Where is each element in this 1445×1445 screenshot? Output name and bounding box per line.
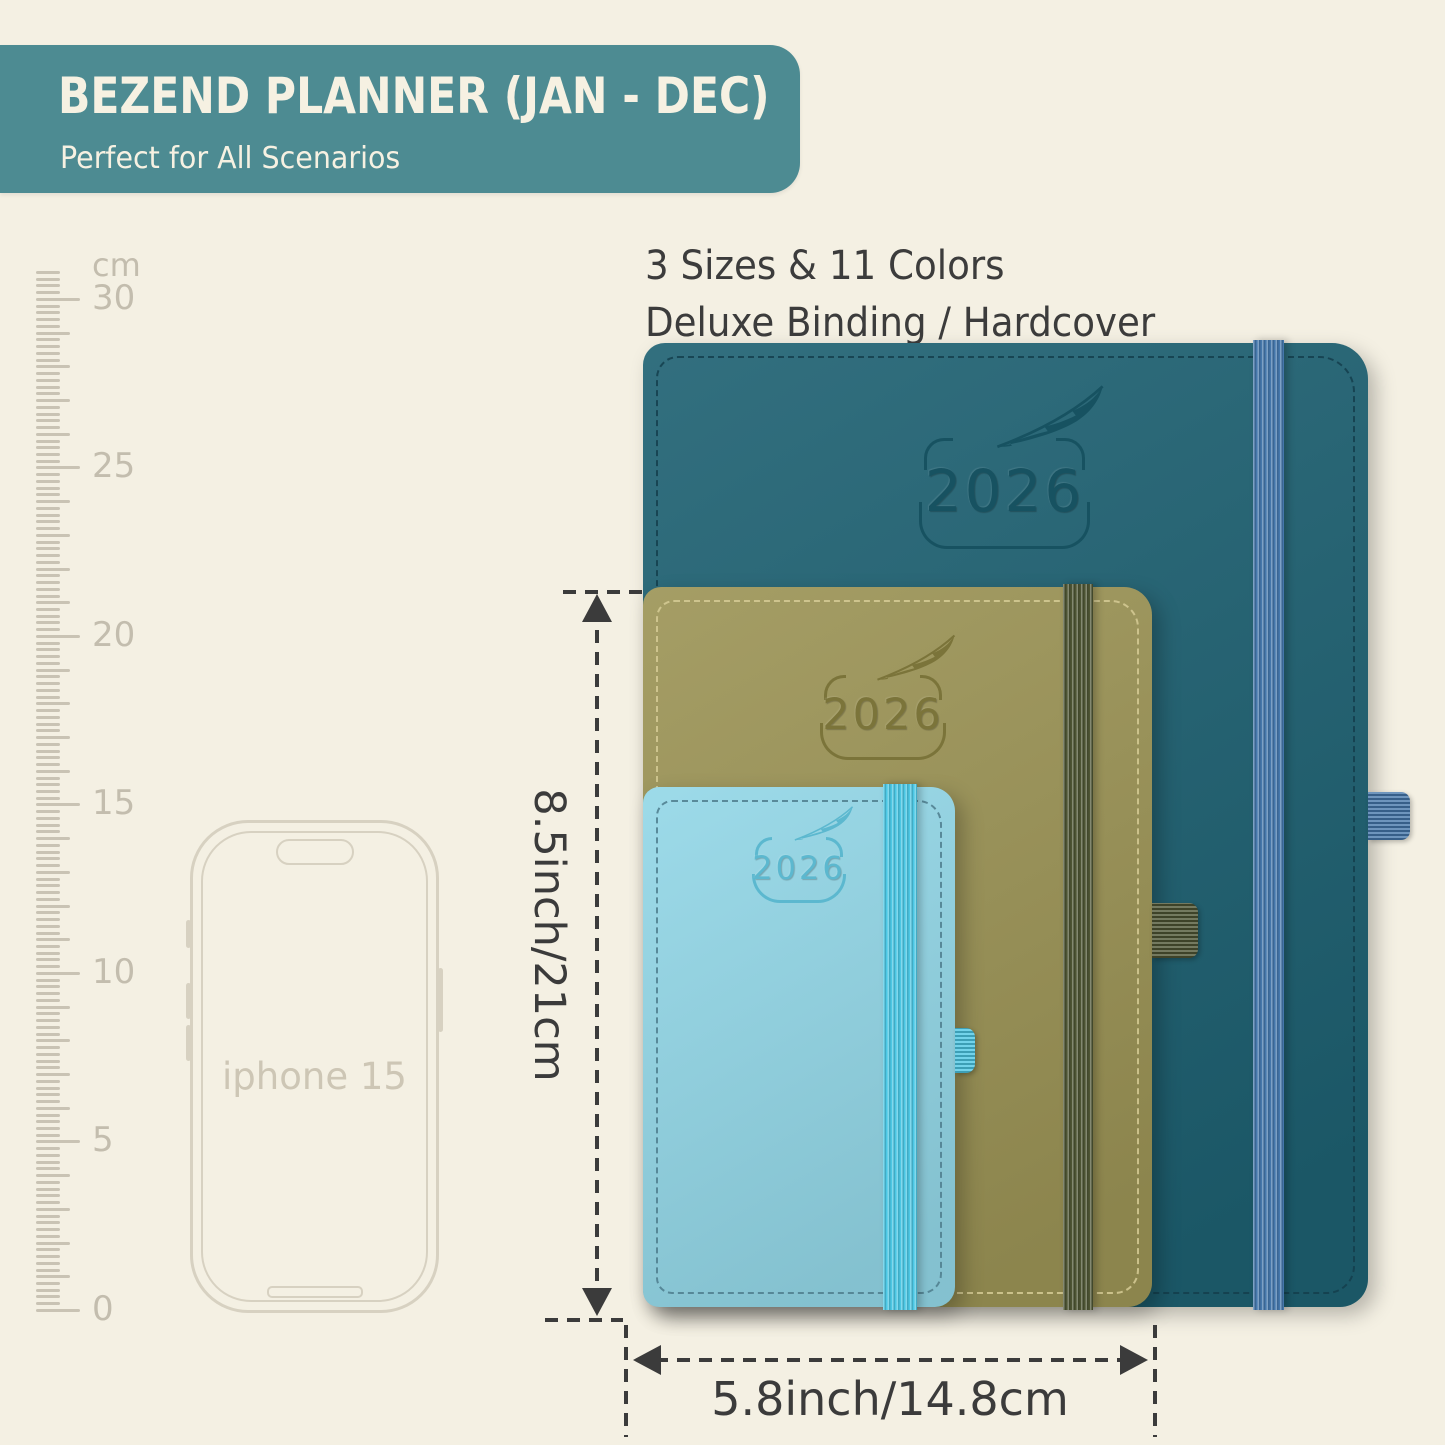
ruler-tick: [36, 541, 60, 544]
ruler-tick: [36, 1073, 70, 1076]
iphone-dynamic-island: [276, 839, 354, 865]
ruler-tick: [36, 648, 60, 651]
elastic-band: [1253, 340, 1284, 1310]
ruler-tick: [36, 1242, 70, 1245]
ruler-tick: [36, 440, 60, 443]
ruler-tick: [36, 857, 60, 860]
ruler-tick: [36, 608, 60, 611]
ruler-tick: [36, 1228, 60, 1231]
iphone-outline: iphone 15: [190, 820, 439, 1313]
iphone-volume-down-button: [186, 1025, 191, 1061]
ruler-tick: [36, 325, 60, 328]
product-infographic: BEZEND PLANNER (JAN - DEC) Perfect for A…: [0, 0, 1445, 1445]
ruler-tick: [36, 844, 60, 847]
ruler-tick: [36, 514, 60, 517]
ruler-tick: [36, 1080, 60, 1083]
ruler-tick: [36, 1134, 60, 1137]
ruler-tick: [36, 992, 60, 995]
ruler-tick: [36, 871, 70, 874]
pen-loop: [1368, 792, 1410, 840]
ruler-tick: [36, 493, 60, 496]
ruler-tick: [36, 1255, 60, 1258]
ruler-tick: [36, 1039, 70, 1042]
ruler-tick: [36, 1208, 70, 1211]
ruler-tick: [36, 985, 60, 988]
ruler-tick: [36, 547, 60, 550]
ruler-tick: [36, 1066, 60, 1069]
ruler-tick: [36, 669, 70, 672]
ruler-tick: [36, 689, 60, 692]
ruler-tick: [36, 446, 60, 449]
ruler-tick: [36, 527, 60, 530]
ruler-tick: [36, 1060, 60, 1063]
ruler-tick: [36, 1167, 60, 1170]
ruler-tick: [36, 1161, 60, 1164]
ruler-tick: [36, 1215, 60, 1218]
ruler-tick: [36, 938, 70, 941]
ruler-tick: [36, 891, 60, 894]
ruler-tick: [36, 837, 70, 840]
ruler-tick: [36, 790, 60, 793]
product-title: BEZEND PLANNER (JAN - DEC): [58, 67, 770, 125]
feature-line-sizes: 3 Sizes & 11 Colors: [645, 238, 1155, 295]
ruler-tick: [36, 729, 60, 732]
width-dim-label: 5.8inch/14.8cm: [711, 1372, 1069, 1426]
ruler-tick: [36, 1262, 60, 1265]
ruler-tick: [36, 1046, 60, 1049]
ruler-tick: [36, 851, 60, 854]
ruler-unit-label: cm: [92, 246, 141, 284]
ruler-tick: [36, 1181, 60, 1184]
ruler-tick: [36, 406, 60, 409]
ruler-tick: [36, 345, 60, 348]
ruler-tick: [36, 810, 60, 813]
ruler-tick: [36, 655, 60, 658]
ruler-tick: [36, 1093, 60, 1096]
ruler-tick: [36, 332, 70, 335]
ruler-tick: [36, 1302, 60, 1305]
ruler-tick: [36, 878, 60, 881]
ruler-tick: [36, 1289, 60, 1292]
ruler-tick: [36, 756, 60, 759]
ruler-tick: [36, 271, 60, 274]
arrow-down-icon: [582, 1288, 612, 1316]
ruler-tick: [36, 453, 60, 456]
year-embossed: 2026: [751, 837, 847, 899]
width-dim-left-tick: [624, 1325, 628, 1437]
ruler-tick: [36, 1127, 60, 1130]
iphone-volume-up-button: [186, 983, 191, 1019]
planner-logo: 2026: [819, 675, 947, 755]
ruler-tick: [36, 702, 70, 705]
ruler-tick: [36, 763, 60, 766]
pen-loop: [1152, 903, 1198, 958]
ruler-tick: [36, 386, 60, 389]
ruler-tick: [36, 298, 80, 301]
ruler-tick: [36, 399, 70, 402]
ruler-tick: [36, 1087, 60, 1090]
ruler-tick: [36, 1201, 60, 1204]
ruler-tick: [36, 338, 60, 341]
ruler-tick: [36, 1188, 60, 1191]
ruler-tick: [36, 952, 60, 955]
width-dim-line: [655, 1358, 1127, 1362]
ruler-tick: [36, 696, 60, 699]
ruler-tick: [36, 426, 60, 429]
ruler-number: 5: [92, 1120, 114, 1160]
ruler-tick: [36, 736, 70, 739]
ruler-tick: [36, 460, 60, 463]
iphone-bottom-slot: [267, 1286, 363, 1298]
ruler-tick: [36, 958, 60, 961]
ruler-tick: [36, 979, 60, 982]
ruler-tick: [36, 783, 60, 786]
ruler-tick: [36, 911, 60, 914]
ruler-tick: [36, 359, 60, 362]
ruler-tick: [36, 1006, 70, 1009]
ruler-tick: [36, 1248, 60, 1251]
ruler-tick: [36, 830, 60, 833]
ruler-tick: [36, 507, 60, 510]
ruler-tick: [36, 770, 70, 773]
ruler-tick: [36, 1026, 60, 1029]
ruler-tick: [36, 945, 60, 948]
ruler-number: 15: [92, 783, 135, 823]
ruler-tick: [36, 520, 60, 523]
feature-text: 3 Sizes & 11 Colors Deluxe Binding / Har…: [645, 238, 1155, 352]
ruler-tick: [36, 574, 60, 577]
ruler-tick: [36, 352, 60, 355]
ruler-tick: [36, 413, 60, 416]
ruler-tick: [36, 932, 60, 935]
ruler-tick: [36, 1235, 60, 1238]
ruler-tick: [36, 595, 60, 598]
ruler-tick: [36, 635, 80, 638]
ruler-tick: [36, 918, 60, 921]
ruler-tick: [36, 473, 60, 476]
product-subtitle: Perfect for All Scenarios: [60, 141, 400, 176]
ruler-tick: [36, 642, 60, 645]
year-embossed: 2026: [819, 675, 947, 755]
ruler-tick: [36, 561, 60, 564]
ruler-tick: [36, 554, 60, 557]
ruler-tick: [36, 1012, 60, 1015]
ruler-tick: [36, 709, 60, 712]
ruler-tick: [36, 433, 70, 436]
ruler: 302520151050: [36, 271, 176, 1316]
ruler-tick: [36, 898, 60, 901]
ruler-tick: [36, 864, 60, 867]
ruler-tick: [36, 291, 60, 294]
elastic-band: [883, 784, 917, 1310]
ruler-tick: [36, 1309, 80, 1312]
ruler-tick: [36, 1275, 70, 1278]
ruler-tick: [36, 621, 60, 624]
ruler-tick: [36, 1140, 80, 1143]
year-embossed: 2026: [917, 438, 1092, 543]
ruler-tick: [36, 905, 70, 908]
ruler-tick: [36, 965, 60, 968]
elastic-band: [1063, 584, 1093, 1310]
height-dim-line: [595, 608, 599, 1298]
ruler-tick: [36, 1221, 60, 1224]
ruler-tick: [36, 1194, 60, 1197]
ruler-tick: [36, 723, 60, 726]
planner-logo: 2026: [751, 837, 847, 899]
ruler-tick: [36, 884, 60, 887]
ruler-tick: [36, 588, 60, 591]
ruler-tick: [36, 1154, 60, 1157]
ruler-tick: [36, 1174, 70, 1177]
ruler-tick: [36, 318, 60, 321]
ruler-tick: [36, 601, 70, 604]
ruler-tick: [36, 682, 60, 685]
pen-loop: [955, 1028, 975, 1073]
arrow-left-icon: [633, 1345, 661, 1375]
ruler-tick: [36, 305, 60, 308]
iphone-label: iphone 15: [193, 1055, 436, 1098]
ruler-tick: [36, 817, 60, 820]
ruler-tick: [36, 1120, 60, 1123]
ruler-tick: [36, 278, 60, 281]
ruler-tick: [36, 797, 60, 800]
width-dim-right-tick: [1153, 1325, 1157, 1437]
ruler-tick: [36, 716, 60, 719]
iphone-action-button: [186, 920, 191, 948]
ruler-tick: [36, 628, 60, 631]
ruler-number: 10: [92, 952, 135, 992]
ruler-tick: [36, 1295, 60, 1298]
ruler-tick: [36, 1100, 60, 1103]
ruler-tick: [36, 365, 70, 368]
ruler-tick: [36, 1269, 60, 1272]
height-dim-label: 8.5inch/21cm: [524, 788, 574, 1081]
ruler-tick: [36, 925, 60, 928]
ruler-tick: [36, 803, 80, 806]
ruler-tick: [36, 311, 60, 314]
ruler-tick: [36, 487, 60, 490]
height-dim-bottom-tick: [545, 1318, 623, 1322]
ruler-tick: [36, 419, 60, 422]
ruler-tick: [36, 777, 60, 780]
planner-small: 2026: [643, 787, 955, 1307]
arrow-up-icon: [582, 594, 612, 622]
ruler-tick: [36, 1282, 60, 1285]
ruler-tick: [36, 581, 60, 584]
ruler-tick: [36, 999, 60, 1002]
ruler-tick: [36, 1033, 60, 1036]
ruler-tick: [36, 466, 80, 469]
planner-logo: 2026: [917, 438, 1092, 543]
ruler-tick: [36, 824, 60, 827]
ruler-tick: [36, 480, 60, 483]
ruler-tick: [36, 615, 60, 618]
iphone-side-button: [438, 968, 443, 1032]
ruler-tick: [36, 675, 60, 678]
arrow-right-icon: [1120, 1345, 1148, 1375]
ruler-tick: [36, 743, 60, 746]
ruler-tick: [36, 284, 60, 287]
ruler-tick: [36, 1114, 60, 1117]
ruler-tick: [36, 1107, 70, 1110]
ruler-tick: [36, 750, 60, 753]
ruler-tick: [36, 534, 70, 537]
ruler-tick: [36, 379, 60, 382]
ruler-tick: [36, 1019, 60, 1022]
ruler-tick: [36, 500, 70, 503]
ruler-tick: [36, 1053, 60, 1056]
ruler-tick: [36, 662, 60, 665]
ruler-number: 0: [92, 1289, 114, 1329]
title-banner: BEZEND PLANNER (JAN - DEC) Perfect for A…: [0, 45, 800, 193]
ruler-tick: [36, 372, 60, 375]
ruler-tick: [36, 1147, 60, 1150]
ruler-number: 20: [92, 615, 135, 655]
ruler-number: 25: [92, 446, 135, 486]
ruler-tick: [36, 972, 80, 975]
ruler-tick: [36, 392, 60, 395]
ruler-tick: [36, 568, 70, 571]
